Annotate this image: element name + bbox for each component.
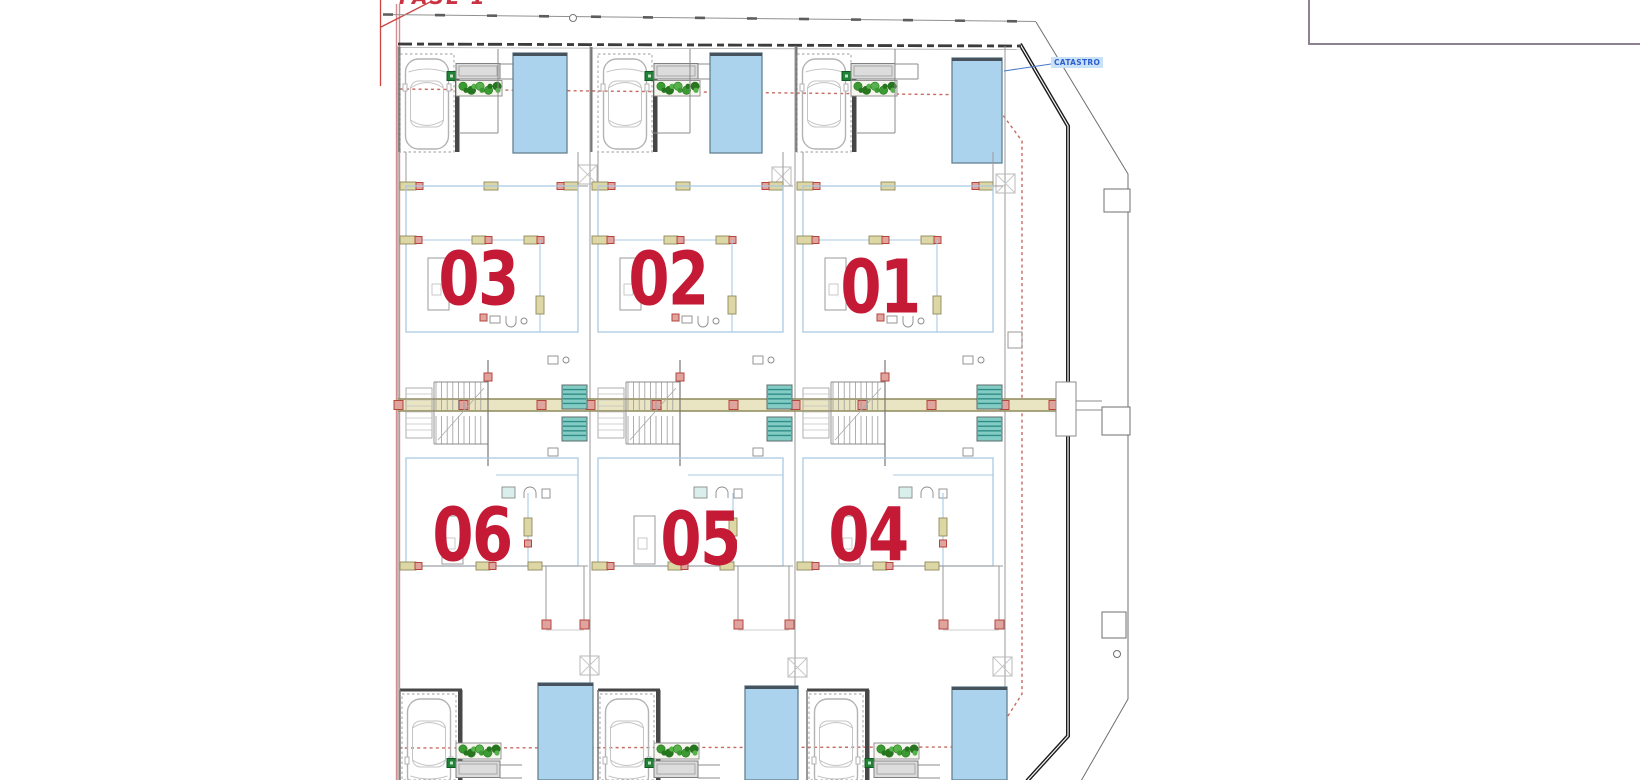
car-icon	[800, 59, 848, 149]
tiled-block	[767, 385, 792, 409]
kitchen-island	[634, 516, 655, 564]
pool	[745, 686, 798, 780]
front-yard	[592, 47, 763, 153]
car-icon	[403, 59, 451, 149]
gate-marker	[447, 72, 456, 81]
tiled-block	[562, 385, 587, 409]
crossed-box-marker	[993, 657, 1012, 676]
car-icon	[405, 699, 453, 780]
dwelling-bay	[797, 47, 1008, 780]
gate-marker	[645, 759, 654, 768]
planter	[874, 743, 919, 759]
unit-number-label: 04	[828, 499, 907, 573]
unit-number-label: 02	[628, 243, 707, 317]
gate-marker	[842, 72, 851, 81]
fase-label-text: FASE 1	[399, 0, 487, 9]
back-yard	[400, 683, 593, 780]
title-block	[1308, 0, 1640, 45]
tiled-block	[977, 385, 1002, 409]
tiled-block	[977, 417, 1002, 441]
catastro-label: CATASTRO	[1051, 57, 1103, 68]
back-yard	[807, 687, 1007, 780]
pool	[710, 53, 762, 153]
car-icon	[603, 699, 651, 780]
floor-plan-svg	[0, 0, 1640, 780]
crossed-box-marker	[788, 658, 807, 677]
front-yard	[797, 47, 1003, 163]
car-icon	[812, 699, 860, 780]
unit-number-label: 06	[432, 499, 511, 573]
tiled-block	[562, 417, 587, 441]
planter	[456, 81, 502, 97]
planter	[654, 743, 699, 759]
front-yard	[400, 47, 568, 153]
gate-marker	[645, 72, 654, 81]
back-yard	[598, 686, 798, 780]
dwelling-bay	[400, 47, 594, 780]
crossed-box-marker	[578, 165, 597, 184]
planter	[851, 81, 897, 97]
unit-number-label: 03	[438, 243, 517, 317]
fase-label: FASE 1	[391, 0, 523, 9]
unit-number-label: 01	[840, 251, 919, 325]
gate-marker	[865, 759, 874, 768]
plot-division-lines	[398, 46, 1005, 780]
planter	[456, 743, 501, 759]
pool	[952, 58, 1002, 163]
pool	[538, 683, 593, 780]
right-plot-stub	[1008, 332, 1022, 348]
site-plan-page: FASE 1 CATASTRO 03 02 01 06 05 04	[0, 0, 1640, 780]
pool	[952, 687, 1007, 780]
dwelling-bay	[592, 47, 799, 780]
pool	[513, 53, 567, 153]
unit-number-label: 05	[660, 503, 739, 577]
gate-marker	[447, 759, 456, 768]
car-icon	[601, 59, 649, 149]
tiled-block	[767, 417, 792, 441]
catastro-leader	[1004, 64, 1051, 71]
planter	[654, 81, 700, 97]
